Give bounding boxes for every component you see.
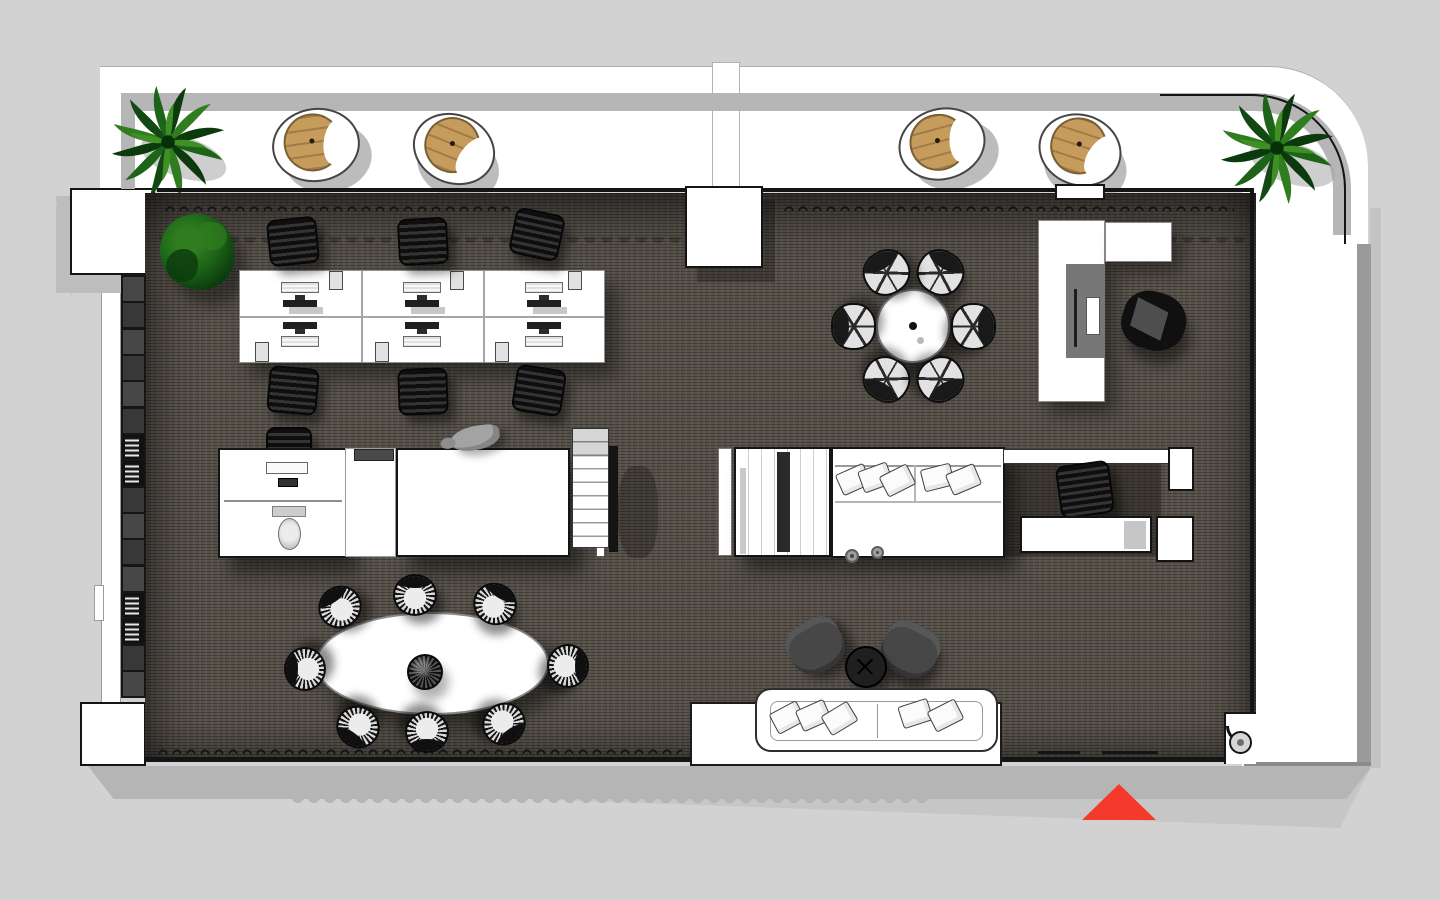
- balcony-top-shadow: [133, 93, 1173, 111]
- task-chair: [266, 365, 320, 416]
- desk-divider: [240, 316, 604, 318]
- toilet-tank: [272, 506, 306, 517]
- shelf-cell: [123, 672, 144, 696]
- task-chair: [266, 216, 321, 268]
- wire-meeting-chair: [951, 303, 996, 350]
- basket-chair-button: [450, 140, 457, 147]
- shelf-cell: [123, 330, 144, 354]
- cpu-box: [450, 271, 464, 290]
- monitor: [405, 322, 439, 329]
- balcony-pier: [712, 62, 740, 190]
- structural-column: [685, 186, 763, 268]
- monitor-stand: [417, 329, 427, 334]
- monitor: [283, 322, 317, 329]
- table-center-dot: [909, 322, 917, 330]
- wardrobe-unit: [734, 447, 831, 557]
- door-pivot: [1229, 731, 1252, 754]
- monitor: [527, 300, 561, 307]
- core-desk-keyboard: [278, 478, 298, 487]
- cpu-box: [375, 342, 389, 362]
- task-chair: [397, 217, 449, 267]
- bottom-left-annex-room: [80, 702, 146, 766]
- shrub-leaf-cluster: [197, 222, 227, 251]
- radiator-symbol-top-left: [163, 202, 511, 211]
- room-divider-line: [224, 500, 342, 502]
- left-exterior-wall: [101, 275, 121, 703]
- wardrobe-dark-panel: [777, 452, 790, 552]
- staircase: [572, 428, 609, 548]
- lounge-side-table: [845, 646, 887, 688]
- stair-cast-shadow: [618, 466, 658, 558]
- shelf-cell-with-books: [123, 593, 144, 617]
- core-desk-monitor: [266, 462, 308, 474]
- core-door-lintel: [354, 449, 394, 461]
- shelf-cell: [123, 646, 144, 670]
- desk-pad: [403, 336, 441, 347]
- corridor-bottom-edge: [1244, 762, 1371, 766]
- building-shadow-scallops: [290, 797, 930, 810]
- shelf-cell: [123, 567, 144, 591]
- south-wall-line-left: [145, 757, 691, 762]
- chair-backrest: [831, 308, 849, 346]
- floor-plan-canvas: [0, 0, 1440, 900]
- building-shadow-band: [88, 766, 1372, 799]
- wall-stub-north-east: [1055, 184, 1105, 200]
- entrance-door-dash: [1102, 751, 1158, 754]
- banquette-unit: [831, 447, 1005, 558]
- shelf-cell: [123, 277, 144, 301]
- alcove-chair: [1055, 460, 1116, 520]
- desk-pad: [525, 336, 563, 347]
- shelf-cell-with-books: [123, 619, 144, 643]
- monitor-stand: [539, 329, 549, 334]
- task-chair: [508, 206, 567, 262]
- palm-plant-left: [105, 86, 231, 198]
- shrub-leaf-cluster: [166, 249, 199, 282]
- shelf-cell: [123, 382, 144, 406]
- shelf-cell: [123, 356, 144, 380]
- monitor: [283, 300, 317, 307]
- door-pivot-center: [1237, 739, 1245, 747]
- l-desk-laptop: [1086, 297, 1100, 335]
- basket-chair-button: [309, 138, 315, 144]
- shelf-cell-with-books: [123, 461, 144, 485]
- floor-stool: [845, 549, 859, 563]
- task-chair: [397, 367, 449, 416]
- east-wall-line: [1250, 188, 1254, 762]
- stool-center: [850, 554, 854, 558]
- chair-backrest: [284, 651, 298, 688]
- table-small-object: [917, 337, 924, 344]
- floor-stool: [871, 546, 884, 559]
- desk-pad: [525, 282, 563, 293]
- cpu-box: [495, 342, 509, 362]
- sofa-seat-seam: [877, 704, 879, 738]
- stair-side-wall: [609, 446, 618, 552]
- core-office-room: [218, 448, 347, 558]
- chair-backrest: [978, 308, 996, 346]
- wire-meeting-chair: [831, 303, 876, 350]
- chair-backrest: [397, 574, 434, 588]
- entrance-arrow: [1082, 784, 1156, 820]
- wire-dining-chair: [284, 647, 326, 691]
- library-shelf-wall: [121, 275, 146, 698]
- wardrobe-gray-panel: [740, 468, 746, 554]
- right-wall-outer-shadow: [1370, 208, 1381, 768]
- south-wall-line-right: [1000, 757, 1252, 762]
- wire-dining-chair: [547, 644, 589, 688]
- task-chair: [511, 363, 568, 417]
- alcove-desk-pad: [1124, 521, 1146, 549]
- alcove-right-wall: [1156, 516, 1194, 562]
- shelf-cell: [123, 540, 144, 564]
- monitor: [527, 322, 561, 329]
- desk-pad: [281, 282, 319, 293]
- cpu-box: [329, 271, 343, 290]
- basket-chair: [267, 102, 364, 188]
- alcove-right-wall-upper: [1168, 447, 1194, 491]
- right-corridor: [1242, 180, 1368, 766]
- core-big-room: [396, 448, 570, 557]
- chair-backrest: [409, 739, 446, 753]
- l-desk-monitor: [1074, 289, 1077, 347]
- l-desk-horizontal: [1105, 222, 1172, 262]
- stair-base-notch: [596, 547, 605, 557]
- core2-side-panel: [718, 448, 732, 556]
- cpu-box: [568, 271, 582, 290]
- cpu-box: [255, 342, 269, 362]
- radiator-symbol-top-right: [782, 202, 1234, 211]
- desk-pad: [281, 336, 319, 347]
- entrance-door-dash: [1038, 751, 1080, 754]
- shelf-cell-with-books: [123, 435, 144, 459]
- stool-center: [876, 551, 879, 554]
- toilet-bowl: [278, 518, 301, 550]
- left-wall-notch: [94, 585, 104, 621]
- chair-backrest: [575, 648, 589, 685]
- monitor-stand: [295, 329, 305, 334]
- basket-chair-button: [935, 138, 941, 144]
- shelf-cell: [123, 303, 144, 327]
- top-left-annex-room: [70, 188, 155, 275]
- indoor-shrub-plant: [160, 214, 234, 290]
- wire-dining-chair: [393, 574, 437, 616]
- banquette-seat-line: [835, 501, 1001, 503]
- shelf-cell: [123, 409, 144, 433]
- shelf-cell: [123, 488, 144, 512]
- shelf-cell: [123, 514, 144, 538]
- stair-top-shading: [573, 429, 608, 457]
- sculpture-fragment: [440, 437, 456, 450]
- chair-seat-panel: [1128, 297, 1170, 341]
- basket-chair-button: [1076, 141, 1082, 147]
- wire-sphere-centerpiece: [407, 654, 443, 690]
- wire-dining-chair: [405, 711, 449, 753]
- right-exterior-wall: [1357, 244, 1371, 766]
- monitor: [405, 300, 439, 307]
- desk-pad: [403, 282, 441, 293]
- alcove-desk: [1020, 516, 1152, 553]
- core-hall: [345, 448, 396, 557]
